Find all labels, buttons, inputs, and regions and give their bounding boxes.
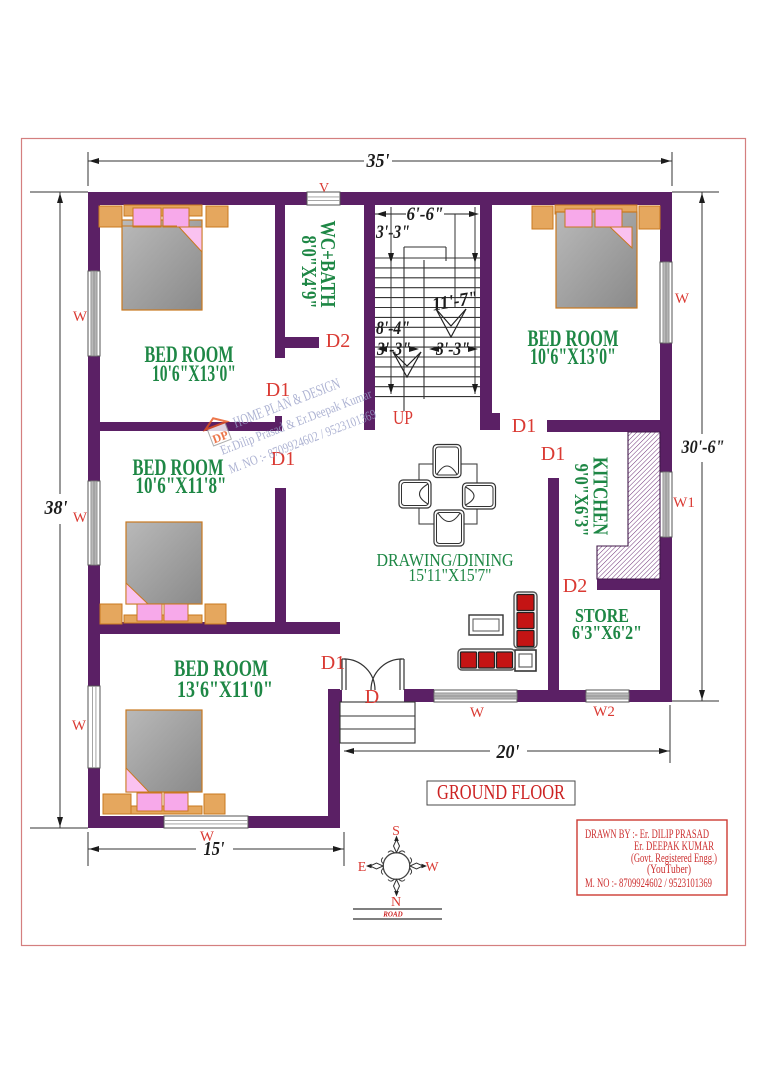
svg-text:W: W xyxy=(470,705,485,721)
svg-text:35': 35' xyxy=(366,150,390,172)
svg-text:10'6"X13'0": 10'6"X13'0" xyxy=(152,361,236,386)
svg-text:E: E xyxy=(358,860,367,875)
svg-text:3'-3": 3'-3" xyxy=(435,339,470,360)
svg-text:15'11"X15'7": 15'11"X15'7" xyxy=(409,565,492,585)
svg-text:30'-6": 30'-6" xyxy=(681,437,725,458)
svg-text:D: D xyxy=(365,686,379,708)
svg-text:W: W xyxy=(72,718,87,734)
svg-text:D1: D1 xyxy=(541,443,565,465)
svg-text:V: V xyxy=(319,181,329,196)
svg-text:GROUND FLOOR: GROUND FLOOR xyxy=(437,780,565,804)
svg-text:9'0"X6'3": 9'0"X6'3" xyxy=(570,464,592,537)
svg-text:W1: W1 xyxy=(673,495,695,511)
svg-text:8'0"X4'9": 8'0"X4'9" xyxy=(297,236,321,309)
svg-text:3'-3": 3'-3" xyxy=(376,339,411,360)
svg-text:D2: D2 xyxy=(563,575,587,597)
svg-text:UP: UP xyxy=(393,408,413,429)
svg-text:(YouTuber): (YouTuber) xyxy=(647,861,691,876)
svg-text:W: W xyxy=(73,309,88,325)
svg-text:W: W xyxy=(425,860,439,875)
svg-text:W: W xyxy=(73,510,88,526)
svg-text:10'6"X13'0": 10'6"X13'0" xyxy=(530,344,616,369)
svg-text:3'-3": 3'-3" xyxy=(375,222,410,243)
svg-text:6'-6": 6'-6" xyxy=(407,204,444,225)
svg-text:ROAD: ROAD xyxy=(382,911,402,919)
svg-text:8'-4": 8'-4" xyxy=(376,318,410,339)
svg-text:13'6"X11'0": 13'6"X11'0" xyxy=(177,677,273,702)
svg-text:W2: W2 xyxy=(593,704,615,720)
svg-text:S: S xyxy=(392,824,400,839)
svg-text:N: N xyxy=(391,895,401,910)
svg-text:10'6"X11'8": 10'6"X11'8" xyxy=(136,473,227,498)
svg-text:20': 20' xyxy=(496,741,520,763)
svg-text:38': 38' xyxy=(44,497,68,519)
svg-text:D1: D1 xyxy=(321,652,345,674)
svg-text:6'3"X6'2": 6'3"X6'2" xyxy=(572,622,642,644)
svg-text:15': 15' xyxy=(204,838,225,860)
svg-text:M. NO :- 8709924602 / 95231013: M. NO :- 8709924602 / 9523101369 xyxy=(585,875,712,890)
svg-text:W: W xyxy=(675,291,690,307)
svg-text:D2: D2 xyxy=(326,330,350,352)
svg-text:D1: D1 xyxy=(512,415,536,437)
